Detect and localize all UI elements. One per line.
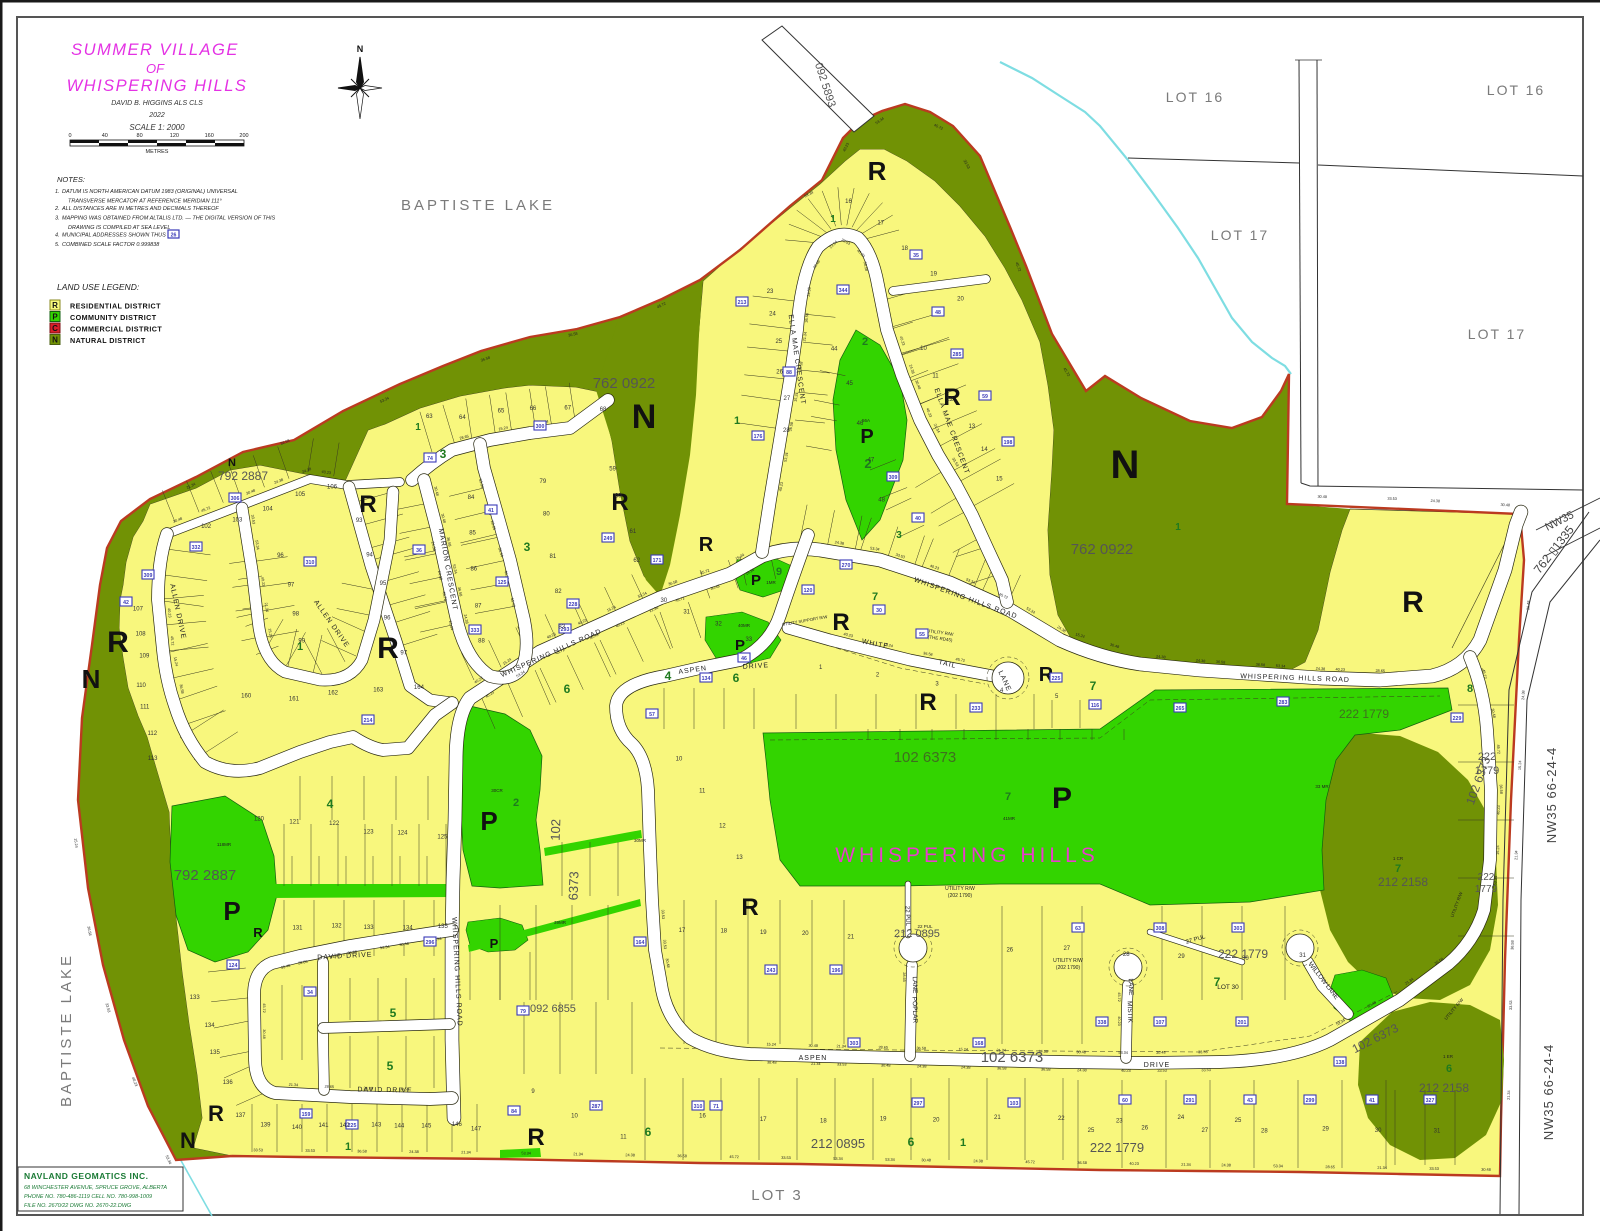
svg-text:53.34: 53.34	[1276, 664, 1286, 669]
svg-text:27: 27	[784, 396, 791, 402]
svg-text:16: 16	[699, 1113, 706, 1119]
svg-text:21.34: 21.34	[573, 1152, 583, 1156]
svg-text:64: 64	[459, 415, 466, 421]
svg-text:45.72: 45.72	[1496, 744, 1501, 754]
svg-text:METRES: METRES	[146, 149, 169, 155]
svg-text:45.72: 45.72	[262, 1003, 266, 1013]
svg-text:105: 105	[295, 492, 306, 498]
svg-text:30: 30	[660, 598, 667, 604]
svg-text:P: P	[52, 313, 58, 322]
svg-text:UTILITY R/W: UTILITY R/W	[1053, 958, 1083, 964]
svg-text:C: C	[52, 324, 58, 333]
svg-text:R: R	[699, 534, 714, 556]
svg-text:33: 33	[745, 637, 752, 643]
svg-text:132: 132	[332, 924, 343, 930]
svg-text:UTILITY R/W: UTILITY R/W	[945, 886, 975, 892]
svg-text:N: N	[82, 664, 101, 694]
svg-text:33.53: 33.53	[1429, 1167, 1439, 1171]
svg-text:WHISPERING HILLS: WHISPERING HILLS	[67, 77, 248, 95]
svg-text:41: 41	[1369, 1098, 1375, 1104]
svg-text:86: 86	[470, 567, 477, 573]
svg-text:296: 296	[426, 940, 435, 946]
svg-text:63: 63	[1075, 926, 1081, 932]
svg-text:53.34: 53.34	[1118, 1051, 1128, 1055]
svg-text:310: 310	[306, 560, 315, 566]
svg-text:3: 3	[524, 540, 531, 554]
svg-text:45.72: 45.72	[1117, 992, 1121, 1002]
svg-text:306: 306	[231, 496, 240, 502]
svg-text:26: 26	[1141, 1125, 1148, 1131]
svg-text:24.38: 24.38	[1316, 667, 1326, 672]
svg-text:24.38: 24.38	[1430, 499, 1440, 503]
svg-text:133: 133	[364, 925, 375, 931]
svg-text:6373: 6373	[566, 871, 582, 900]
svg-text:24.38: 24.38	[1221, 1163, 1231, 1167]
svg-text:33.53: 33.53	[1157, 1069, 1167, 1073]
svg-text:9: 9	[776, 566, 782, 578]
svg-text:BAPTISTE LAKE: BAPTISTE LAKE	[58, 953, 75, 1107]
svg-text:NAVLAND GEOMATICS INC.: NAVLAND GEOMATICS INC.	[24, 1171, 149, 1181]
svg-text:LOT 17: LOT 17	[1468, 326, 1526, 342]
svg-text:1: 1	[960, 1137, 966, 1149]
svg-text:136: 136	[223, 1080, 234, 1086]
svg-text:116: 116	[1091, 703, 1099, 709]
svg-text:309: 309	[144, 573, 153, 579]
svg-text:27: 27	[1201, 1128, 1208, 1134]
svg-text:R: R	[832, 609, 849, 636]
svg-text:228: 228	[569, 602, 578, 608]
svg-text:28: 28	[783, 428, 790, 434]
svg-text:144: 144	[394, 1124, 405, 1130]
svg-text:2.: 2.	[54, 206, 60, 212]
svg-text:N: N	[180, 1128, 196, 1153]
svg-text:31: 31	[1434, 1128, 1441, 1134]
svg-text:1.: 1.	[55, 189, 60, 195]
svg-text:308: 308	[1156, 926, 1165, 932]
svg-text:33.53: 33.53	[662, 939, 666, 949]
svg-text:229: 229	[1453, 716, 1462, 722]
svg-text:68 WINCHESTER AVENUE, SPRUCE G: 68 WINCHESTER AVENUE, SPRUCE GROVE, ALBE…	[24, 1185, 167, 1191]
svg-text:P: P	[223, 896, 240, 926]
svg-text:TRANSVERSE MERCATOR AT REFEREN: TRANSVERSE MERCATOR AT REFERENCE MERIDIA…	[68, 199, 222, 205]
svg-text:225: 225	[1052, 676, 1061, 682]
svg-text:104: 104	[263, 506, 274, 512]
svg-text:300: 300	[536, 424, 545, 430]
svg-text:2022: 2022	[148, 112, 165, 119]
svg-text:30.48: 30.48	[262, 1029, 266, 1039]
svg-text:21.34: 21.34	[811, 1062, 821, 1066]
svg-text:792 2887: 792 2887	[218, 469, 268, 483]
svg-text:297: 297	[914, 1101, 923, 1107]
svg-text:11: 11	[699, 789, 706, 795]
svg-text:53.34: 53.34	[833, 1157, 843, 1161]
svg-text:21: 21	[847, 935, 854, 941]
svg-text:85: 85	[469, 530, 476, 536]
svg-text:N: N	[1111, 443, 1140, 487]
svg-text:5: 5	[390, 1006, 397, 1020]
svg-text:34: 34	[307, 990, 313, 996]
svg-text:1 ER: 1 ER	[1443, 1054, 1454, 1059]
svg-text:71: 71	[713, 1104, 719, 1110]
svg-text:96: 96	[384, 616, 391, 622]
svg-text:270: 270	[842, 563, 851, 569]
svg-text:55: 55	[919, 632, 925, 638]
svg-text:13: 13	[968, 424, 975, 430]
svg-text:287: 287	[592, 1104, 601, 1110]
svg-text:2: 2	[513, 797, 519, 809]
svg-text:46: 46	[857, 421, 864, 427]
svg-text:COMMUNITY DISTRICT: COMMUNITY DISTRICT	[70, 313, 157, 322]
svg-text:45.72: 45.72	[729, 1155, 739, 1159]
svg-text:26: 26	[1006, 948, 1013, 954]
svg-text:LOT 17: LOT 17	[1211, 227, 1269, 243]
svg-text:P: P	[490, 936, 499, 951]
svg-text:135: 135	[210, 1050, 221, 1056]
svg-text:82: 82	[555, 589, 562, 595]
svg-text:28: 28	[1261, 1128, 1268, 1134]
svg-text:6: 6	[1446, 1063, 1452, 1075]
svg-text:140: 140	[292, 1125, 303, 1131]
svg-text:84: 84	[468, 495, 475, 501]
svg-text:R: R	[377, 632, 399, 665]
svg-text:NOTES:: NOTES:	[57, 175, 85, 184]
svg-text:24.38: 24.38	[973, 1159, 983, 1163]
svg-text:22 PUL: 22 PUL	[904, 906, 911, 927]
svg-text:24.38: 24.38	[1077, 1068, 1087, 1072]
svg-text:33.53: 33.53	[661, 909, 665, 919]
svg-text:N: N	[357, 44, 364, 54]
svg-text:28.65: 28.65	[1375, 669, 1385, 673]
svg-text:196: 196	[832, 968, 841, 974]
svg-text:102 6373: 102 6373	[981, 1049, 1044, 1066]
svg-text:1: 1	[734, 415, 740, 427]
svg-text:30.48: 30.48	[921, 1158, 931, 1162]
svg-text:26: 26	[171, 233, 177, 239]
svg-text:285: 285	[953, 352, 962, 358]
svg-text:33.53: 33.53	[305, 1149, 315, 1153]
svg-text:13: 13	[736, 855, 743, 861]
svg-text:POPLAR: POPLAR	[911, 997, 919, 1024]
svg-text:200: 200	[239, 133, 248, 139]
svg-text:R: R	[253, 925, 263, 940]
svg-text:30CR: 30CR	[491, 788, 503, 793]
svg-text:30: 30	[1375, 1128, 1382, 1134]
svg-text:30.48: 30.48	[767, 1060, 777, 1064]
svg-text:LOT 3: LOT 3	[751, 1187, 802, 1204]
svg-text:10: 10	[920, 346, 927, 352]
svg-text:87: 87	[475, 603, 482, 609]
svg-text:1779: 1779	[1475, 765, 1499, 777]
svg-text:83: 83	[558, 624, 565, 630]
svg-text:20: 20	[957, 297, 964, 303]
svg-text:2: 2	[862, 336, 868, 348]
svg-text:6: 6	[733, 671, 740, 685]
svg-text:21: 21	[994, 1115, 1001, 1121]
svg-text:164: 164	[636, 940, 645, 946]
svg-text:40.23: 40.23	[1336, 668, 1346, 672]
svg-text:17: 17	[679, 928, 686, 934]
svg-text:338: 338	[1098, 1020, 1107, 1026]
svg-text:171: 171	[653, 558, 662, 564]
svg-text:N: N	[228, 457, 236, 469]
svg-text:110: 110	[136, 683, 146, 689]
svg-text:R: R	[208, 1101, 224, 1126]
svg-text:18: 18	[901, 246, 908, 252]
svg-text:30.48: 30.48	[1156, 1051, 1166, 1055]
svg-text:30.48: 30.48	[808, 1044, 818, 1048]
svg-text:53.34: 53.34	[885, 1158, 895, 1162]
svg-text:212 0895: 212 0895	[894, 928, 940, 940]
svg-text:161: 161	[289, 696, 300, 702]
svg-text:25: 25	[1235, 1118, 1242, 1124]
svg-text:107: 107	[1156, 1020, 1165, 1026]
svg-text:291: 291	[1186, 1098, 1195, 1104]
svg-text:COMMERCIAL DISTRICT: COMMERCIAL DISTRICT	[70, 325, 162, 334]
svg-text:44: 44	[831, 347, 838, 353]
svg-text:26: 26	[776, 369, 783, 375]
svg-text:24: 24	[1178, 1115, 1185, 1121]
svg-text:162: 162	[328, 691, 339, 697]
svg-text:327: 327	[1426, 1098, 1435, 1104]
svg-text:283: 283	[1279, 700, 1288, 706]
svg-text:21.34: 21.34	[1181, 1163, 1191, 1167]
svg-text:36.58: 36.58	[916, 1046, 926, 1050]
svg-text:24.38: 24.38	[961, 1066, 971, 1070]
svg-text:103: 103	[232, 518, 243, 524]
svg-text:198: 198	[1004, 440, 1013, 446]
svg-text:233: 233	[972, 706, 981, 712]
svg-text:134: 134	[205, 1023, 216, 1029]
svg-text:36.58: 36.58	[1256, 663, 1266, 668]
svg-text:63: 63	[426, 414, 433, 420]
svg-text:33 MR: 33 MR	[1315, 784, 1329, 789]
svg-text:31: 31	[683, 609, 690, 615]
svg-text:22: 22	[1058, 1116, 1065, 1122]
svg-text:092 6855: 092 6855	[530, 1003, 576, 1015]
svg-text:40: 40	[102, 133, 108, 139]
svg-text:LOT 30: LOT 30	[1217, 984, 1239, 991]
svg-text:45: 45	[846, 381, 853, 387]
svg-text:97: 97	[400, 651, 407, 657]
svg-text:29: 29	[1178, 954, 1185, 960]
svg-text:48: 48	[878, 497, 885, 503]
svg-text:67: 67	[564, 405, 571, 411]
svg-text:35: 35	[913, 253, 919, 259]
svg-text:36.58: 36.58	[997, 1066, 1007, 1070]
svg-text:24: 24	[769, 311, 776, 317]
svg-text:LANE: LANE	[911, 976, 919, 994]
svg-text:11: 11	[620, 1134, 627, 1140]
svg-text:R: R	[52, 301, 58, 310]
svg-text:120: 120	[804, 588, 813, 594]
svg-text:6: 6	[645, 1125, 652, 1139]
svg-text:36.58: 36.58	[1077, 1161, 1087, 1165]
svg-text:19: 19	[930, 272, 937, 278]
svg-text:160: 160	[205, 133, 214, 139]
svg-text:PHONE NO. 780-486-1119 CE: PHONE NO. 780-486-1119 CELL NO. 780-998-…	[24, 1194, 152, 1200]
svg-text:P: P	[1052, 782, 1072, 815]
svg-text:R: R	[868, 156, 887, 186]
svg-text:24.38: 24.38	[625, 1153, 635, 1157]
svg-text:5: 5	[387, 1059, 394, 1073]
svg-text:P: P	[751, 572, 761, 589]
svg-text:36: 36	[416, 548, 422, 554]
svg-text:79: 79	[520, 1009, 526, 1015]
svg-text:33.53: 33.53	[837, 1062, 847, 1066]
svg-text:NW35 66-24-4: NW35 66-24-4	[1541, 1044, 1556, 1141]
svg-text:7: 7	[872, 591, 878, 603]
svg-text:249: 249	[604, 536, 613, 542]
svg-text:N: N	[632, 398, 657, 436]
svg-text:792 2887: 792 2887	[174, 867, 237, 884]
svg-text:125: 125	[437, 834, 448, 840]
svg-text:222 1779: 222 1779	[1090, 1140, 1144, 1155]
svg-text:15: 15	[996, 476, 1003, 482]
svg-text:33.53: 33.53	[1387, 497, 1397, 501]
svg-text:1: 1	[345, 1141, 351, 1153]
svg-text:7: 7	[1395, 863, 1401, 875]
svg-text:R: R	[527, 1124, 544, 1151]
svg-text:3.: 3.	[55, 216, 60, 222]
svg-text:12: 12	[947, 397, 954, 403]
svg-text:40.23: 40.23	[1117, 1016, 1121, 1026]
svg-text:1MR: 1MR	[766, 580, 776, 585]
svg-text:65: 65	[498, 408, 505, 414]
svg-text:NATURAL DISTRICT: NATURAL DISTRICT	[70, 336, 146, 345]
svg-text:R: R	[359, 491, 376, 518]
svg-text:41: 41	[488, 508, 494, 514]
svg-text:143: 143	[371, 1123, 382, 1129]
svg-text:40.23: 40.23	[1129, 1162, 1139, 1166]
svg-text:27: 27	[1063, 946, 1070, 952]
svg-text:332: 332	[192, 545, 201, 551]
svg-text:23: 23	[1116, 1119, 1123, 1125]
svg-text:21.34: 21.34	[1377, 1166, 1387, 1170]
svg-text:762 0922: 762 0922	[593, 375, 656, 392]
svg-text:53.34: 53.34	[521, 1151, 531, 1155]
svg-text:29: 29	[1322, 1126, 1329, 1132]
svg-text:212 0895: 212 0895	[811, 1136, 865, 1151]
svg-text:(202 1790): (202 1790)	[1056, 965, 1081, 971]
svg-text:36.58: 36.58	[357, 1149, 367, 1153]
svg-text:46: 46	[741, 656, 747, 662]
svg-text:79: 79	[540, 479, 547, 485]
svg-text:4: 4	[665, 669, 672, 683]
svg-text:19: 19	[880, 1116, 887, 1122]
svg-text:19: 19	[760, 930, 767, 936]
svg-text:133: 133	[190, 995, 201, 1001]
svg-text:28.65: 28.65	[1325, 1165, 1335, 1169]
svg-text:222 1779: 222 1779	[1339, 707, 1389, 721]
svg-text:42: 42	[123, 600, 129, 606]
svg-text:310: 310	[694, 1104, 703, 1110]
svg-text:94: 94	[366, 552, 373, 558]
svg-text:43: 43	[1247, 1098, 1253, 1104]
svg-text:303: 303	[1234, 926, 1243, 932]
svg-text:(202 1790): (202 1790)	[948, 893, 973, 899]
svg-text:36.58: 36.58	[1499, 784, 1504, 794]
svg-text:28: 28	[1123, 952, 1130, 958]
svg-text:243: 243	[767, 968, 776, 974]
svg-text:7: 7	[1090, 679, 1097, 693]
svg-text:1: 1	[1175, 522, 1181, 533]
svg-text:6: 6	[564, 682, 571, 696]
svg-text:163: 163	[373, 687, 384, 693]
svg-text:20: 20	[802, 931, 809, 937]
svg-text:134: 134	[403, 926, 414, 932]
svg-text:MUNICIPAL ADDRESSES SHOWN THUS: MUNICIPAL ADDRESSES SHOWN THUS	[62, 233, 166, 239]
svg-text:COMBINED SCALE FACTOR 0.999838: COMBINED SCALE FACTOR 0.999838	[62, 242, 160, 248]
svg-text:30: 30	[1242, 956, 1249, 962]
svg-text:106: 106	[327, 485, 338, 491]
svg-text:6: 6	[908, 1135, 915, 1149]
svg-text:80: 80	[543, 511, 550, 517]
svg-text:60: 60	[615, 493, 622, 499]
svg-text:MAPPING WAS OBTAINED FROM ALTA: MAPPING WAS OBTAINED FROM ALTALIS LTD. —…	[62, 216, 276, 222]
svg-text:1 CR: 1 CR	[1393, 856, 1404, 861]
svg-text:40.23: 40.23	[1121, 1069, 1131, 1073]
svg-text:66: 66	[530, 406, 537, 412]
svg-text:4: 4	[327, 797, 334, 811]
svg-text:24.38: 24.38	[807, 287, 812, 297]
svg-text:20: 20	[933, 1117, 940, 1123]
svg-text:84: 84	[511, 1109, 517, 1115]
svg-text:24.38: 24.38	[917, 1064, 927, 1068]
svg-text:95: 95	[380, 581, 387, 587]
svg-text:8: 8	[1467, 683, 1473, 695]
svg-text:31: 31	[1299, 953, 1306, 959]
svg-text:160: 160	[241, 693, 252, 699]
svg-text:1: 1	[830, 214, 836, 225]
svg-text:146: 146	[452, 1122, 463, 1128]
svg-text:145: 145	[421, 1123, 432, 1129]
svg-text:125: 125	[498, 580, 507, 586]
svg-text:NW35 66-24-4: NW35 66-24-4	[1544, 747, 1559, 844]
svg-text:41MR: 41MR	[1003, 816, 1016, 821]
svg-text:142: 142	[340, 1123, 351, 1129]
svg-text:134: 134	[702, 676, 711, 682]
svg-text:17: 17	[877, 220, 884, 226]
svg-text:24.38: 24.38	[1521, 690, 1525, 700]
svg-text:17: 17	[760, 1117, 767, 1123]
svg-text:57: 57	[649, 712, 655, 718]
svg-text:33.53: 33.53	[1509, 1000, 1513, 1010]
svg-text:1: 1	[415, 422, 421, 433]
svg-text:18: 18	[720, 929, 727, 935]
svg-text:62: 62	[633, 558, 640, 564]
svg-text:15.24: 15.24	[1496, 845, 1500, 855]
svg-text:176: 176	[754, 434, 763, 440]
svg-text:164: 164	[414, 685, 425, 691]
svg-text:7: 7	[1005, 791, 1011, 803]
svg-text:5.: 5.	[55, 242, 60, 248]
svg-text:10: 10	[571, 1114, 578, 1120]
svg-text:33.53: 33.53	[781, 1156, 791, 1160]
svg-text:122: 122	[329, 821, 340, 827]
svg-text:47: 47	[868, 458, 875, 464]
svg-text:36.58: 36.58	[1041, 1068, 1051, 1072]
svg-text:53.34: 53.34	[1273, 1164, 1283, 1168]
svg-text:4.: 4.	[55, 233, 60, 239]
svg-text:23: 23	[767, 289, 774, 295]
svg-text:123: 123	[364, 829, 375, 835]
svg-text:LANE: LANE	[1127, 978, 1135, 996]
svg-text:168: 168	[975, 1041, 984, 1047]
svg-text:14: 14	[981, 447, 988, 453]
svg-text:135: 135	[438, 924, 449, 930]
svg-text:121: 121	[289, 819, 300, 825]
svg-text:21.34: 21.34	[1514, 850, 1518, 860]
